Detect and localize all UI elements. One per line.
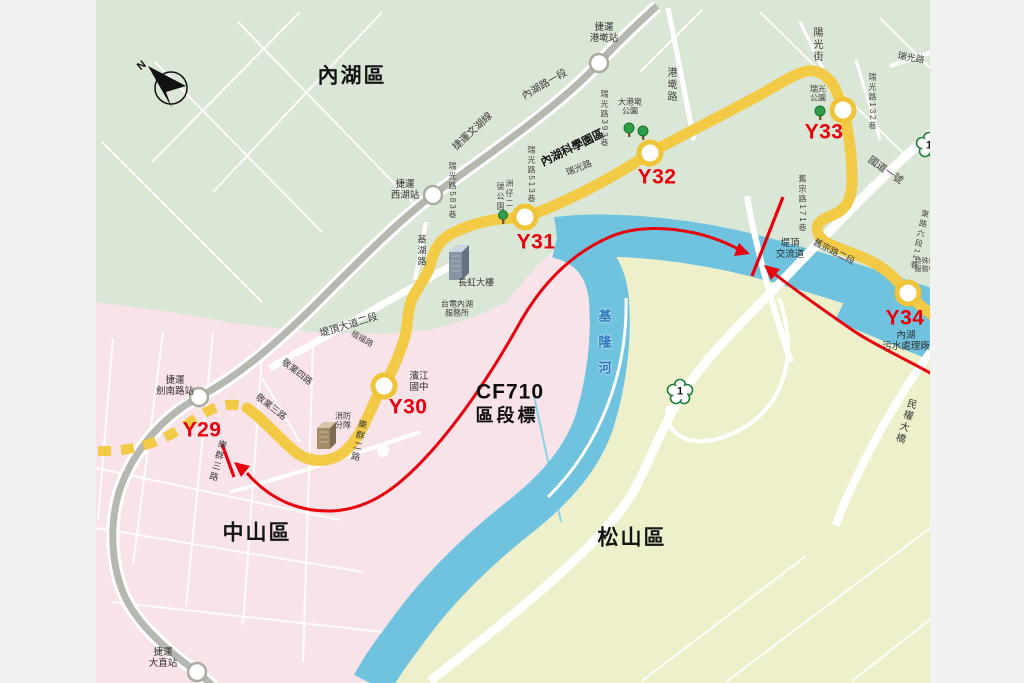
- mrt-dazhi-station: [188, 663, 206, 681]
- mrt-jiannan-station: [190, 388, 208, 406]
- station-y34: [897, 282, 919, 304]
- route-map: 內湖區中山區松山區Y29Y30Y31Y32Y33Y34CF710區段標基隆河捷運…: [0, 0, 1024, 683]
- left-gutter: [0, 0, 96, 683]
- mrt-gangqian-station: [590, 54, 608, 72]
- traffic-circle: [377, 445, 389, 457]
- station-y31: [514, 206, 536, 228]
- mrt-xihu-station: [424, 186, 442, 204]
- station-y30: [373, 375, 395, 397]
- station-y32: [639, 142, 661, 164]
- map-canvas: [0, 0, 1024, 683]
- station-y33: [832, 99, 854, 121]
- right-gutter: [930, 0, 1024, 683]
- changhong-building-icon: [449, 245, 469, 280]
- fire-brigade-building-icon: [317, 422, 336, 449]
